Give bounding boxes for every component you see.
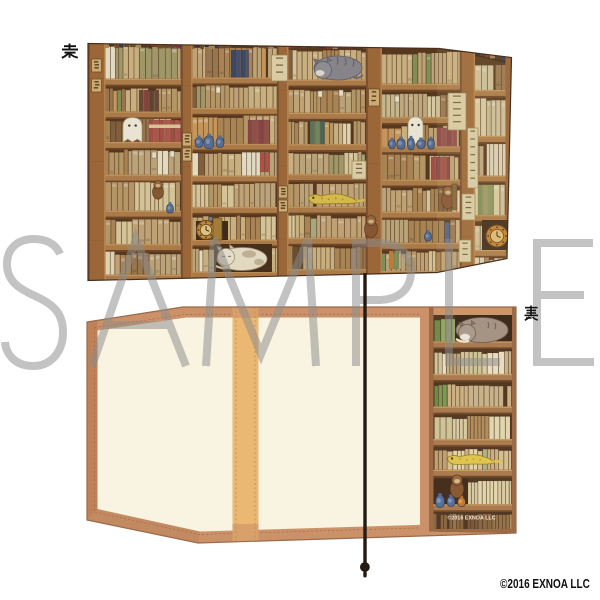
svg-text:©2016 EXNOA LLC: ©2016 EXNOA LLC: [448, 515, 496, 522]
